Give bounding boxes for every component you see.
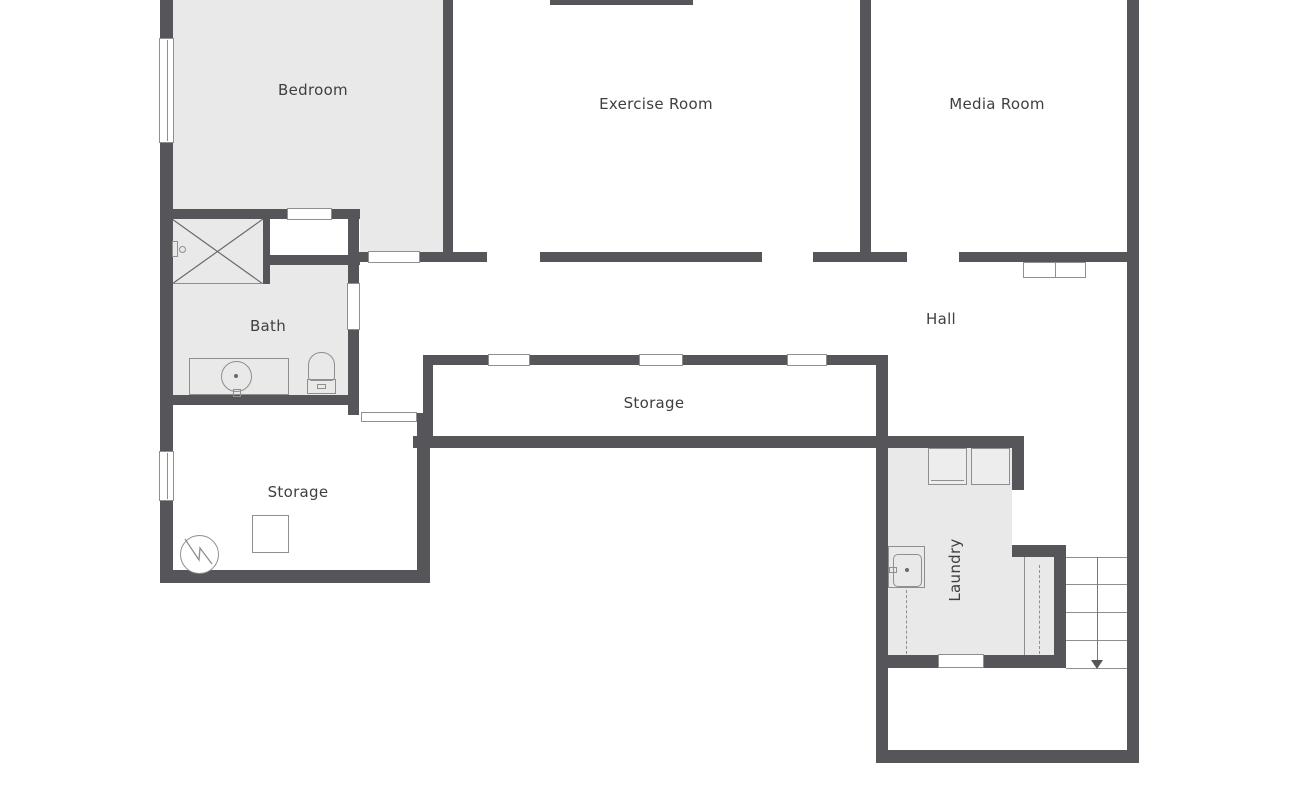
shower-edge [172, 283, 263, 284]
toilet-bowl-icon [308, 352, 335, 381]
wall-bottom-room-bottom [876, 750, 1139, 763]
wall-bath-bottom [160, 395, 359, 405]
toilet-button-icon [317, 384, 326, 389]
sink-faucet-icon [233, 389, 241, 397]
wall-laundry-closet-right [1054, 557, 1066, 658]
wall-shower-right [263, 219, 270, 284]
wall-closet-bottom [263, 255, 360, 265]
bedroom-window [159, 38, 174, 143]
wall-hall-top [348, 252, 1127, 262]
bedroom-door [368, 251, 420, 263]
storage-box [252, 515, 289, 553]
room-label-laundry: Laundry [946, 538, 964, 601]
closet-partition-line [1024, 557, 1025, 655]
door-opening [762, 252, 813, 262]
storage-center-opening [488, 354, 530, 366]
room-label-bedroom: Bedroom [278, 81, 348, 99]
storage-center-opening [639, 354, 683, 366]
storage-window [159, 451, 174, 501]
door-opening [487, 252, 540, 262]
stair-center-line [1097, 557, 1098, 660]
hall-cabinet [1055, 262, 1086, 278]
wall-laundry-right-upper [1012, 436, 1024, 490]
room-label-exercise-room: Exercise Room [599, 95, 713, 113]
wall-top-stub [550, 0, 693, 5]
door-opening [1012, 490, 1024, 545]
wall-laundry-left [876, 355, 888, 763]
storage-lower-door [361, 412, 417, 422]
floor-plan: Bedroom Exercise Room Media Room Bath Ha… [0, 0, 1300, 800]
hall-cabinet [1023, 262, 1056, 278]
water-heater-zigzag-icon [180, 535, 219, 574]
shower-valve-knob-icon [179, 246, 186, 253]
room-label-storage-center: Storage [624, 394, 685, 412]
utility-sink-tap-icon [889, 567, 897, 573]
storage-center-opening [787, 354, 827, 366]
utility-sink-drain-icon [905, 568, 909, 572]
closet-dashed-line [1039, 565, 1040, 654]
room-label-media-room: Media Room [949, 95, 1045, 113]
bath-door [347, 283, 360, 330]
room-label-bath: Bath [250, 317, 286, 335]
closet-door [287, 208, 332, 220]
room-label-hall: Hall [926, 310, 956, 328]
shower-x-icon [172, 219, 263, 284]
window-pane-line [167, 453, 168, 499]
stairs-down-arrow-icon [1091, 660, 1103, 669]
wall-storage-center-left [423, 355, 433, 448]
wall-stairs-top [1012, 545, 1066, 557]
wall-bedroom-right [443, 0, 453, 262]
bedroom-floor [360, 209, 443, 252]
counter-dashed-line [906, 590, 907, 654]
laundry-door [938, 654, 984, 668]
laundry-closet-floor [1012, 557, 1054, 655]
sink-drain-icon [234, 374, 238, 378]
shower-valve-icon [172, 241, 178, 257]
dryer-icon [971, 448, 1010, 485]
room-label-storage-lower: Storage [268, 483, 329, 501]
door-opening [907, 252, 959, 262]
wall-exercise-media-divider [860, 0, 871, 262]
bedroom-floor [172, 0, 443, 209]
window-pane-line [167, 40, 168, 141]
wall-right-exterior [1127, 0, 1139, 763]
washer-door-line [931, 480, 964, 481]
wall-storage-center-bottom [413, 436, 1024, 448]
